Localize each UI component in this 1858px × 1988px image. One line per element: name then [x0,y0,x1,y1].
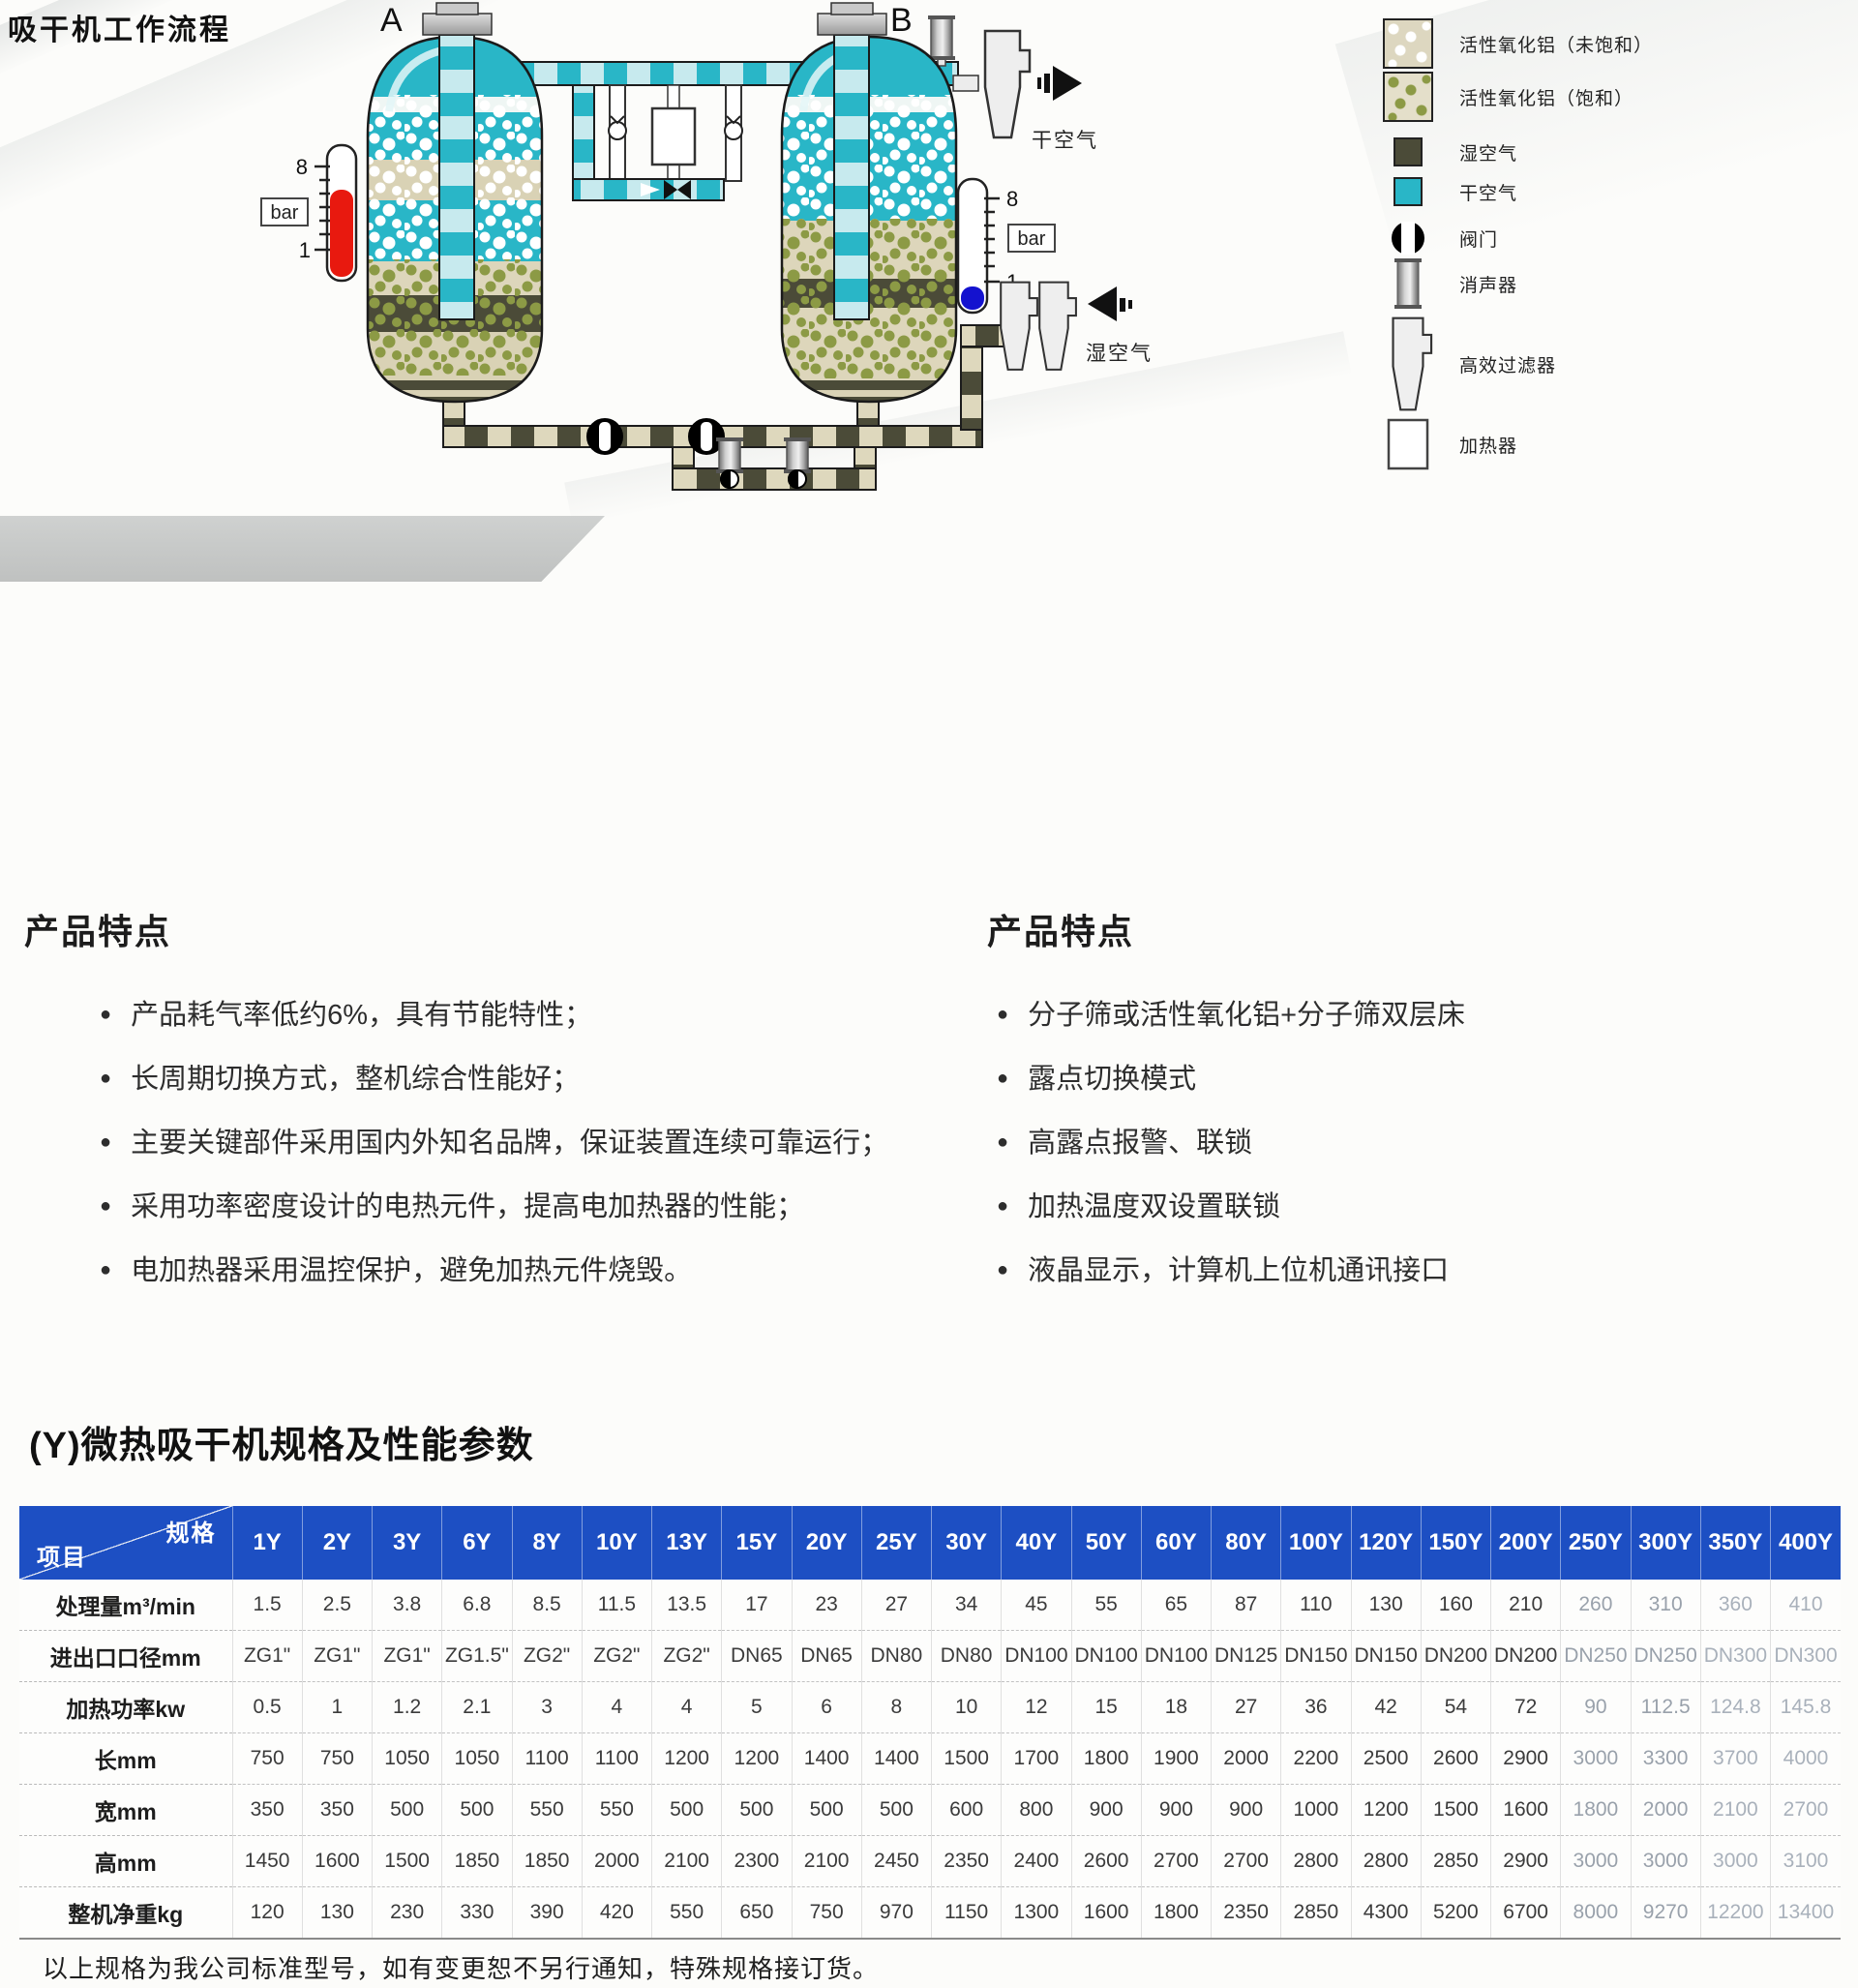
feature-item: ●分子筛或活性氧化铝+分子筛双层床 [987,995,1819,1039]
spec-cell: 1500 [373,1836,442,1887]
bullet-icon: ● [997,1195,1008,1217]
heater-icon [1387,418,1429,470]
row-label: 宽mm [19,1785,232,1836]
gauge-max-label: 8 [1006,187,1018,211]
spec-cell: 2400 [1002,1836,1071,1887]
spec-cell: 8000 [1561,1887,1631,1940]
spec-row: 加热功率kw0.511.22.1344568101215182736425472… [19,1682,1841,1733]
spec-cell: 5 [722,1682,792,1733]
spec-row: 进出口口径mmZG1"ZG1"ZG1"ZG1.5"ZG2"ZG2"ZG2"DN6… [19,1631,1841,1682]
spec-cell: 8 [861,1682,931,1733]
features-right-list: ●分子筛或活性氧化铝+分子筛双层床 ●露点切换模式 ●高露点报警、联锁 ●加热温… [987,995,1819,1294]
feature-item: ●液晶显示，计算机上位机通讯接口 [987,1250,1819,1294]
feature-item: ●电加热器采用温控保护，避免加热元件烧毁。 [24,1250,929,1294]
spec-cell: 2350 [932,1836,1002,1887]
hepa-filter-icon [1380,316,1436,411]
spec-cell: 3300 [1631,1733,1700,1785]
spec-cell: 2.5 [302,1580,372,1631]
spec-cell: 27 [861,1580,931,1631]
spec-cell: 2350 [1212,1887,1281,1940]
feature-item: ●产品耗气率低约6%，具有节能特性； [24,995,929,1039]
spec-cell: 900 [1212,1785,1281,1836]
spec-table-wrap: 规格项目1Y2Y3Y6Y8Y10Y13Y15Y20Y25Y30Y40Y50Y60… [19,1506,1841,1940]
spec-cell: 1900 [1141,1733,1211,1785]
spec-row: 宽mm3503505005005505505005005005006008009… [19,1785,1841,1836]
spec-cell: 2500 [1351,1733,1421,1785]
spec-cell: 1.5 [232,1580,302,1631]
spec-cell: 550 [512,1785,582,1836]
spec-cell: 1800 [1141,1887,1211,1940]
spec-cell: DN65 [722,1631,792,1682]
spec-cell: 4 [582,1682,651,1733]
spec-cell: 2100 [792,1836,861,1887]
spec-cell: 2850 [1281,1887,1351,1940]
spec-cell: 8.5 [512,1580,582,1631]
spec-cell: 0.5 [232,1682,302,1733]
legend-label: 消声器 [1459,271,1517,297]
spec-cell: 2000 [1631,1785,1700,1836]
column-header-120Y: 120Y [1351,1506,1421,1580]
column-header-2Y: 2Y [302,1506,372,1580]
feature-item: ●露点切换模式 [987,1059,1819,1102]
spec-cell: 1 [302,1682,372,1733]
spec-cell: 4 [652,1682,722,1733]
spec-cell: 230 [373,1887,442,1940]
vessel-b-label: B [890,2,913,39]
spec-cell: 2850 [1421,1836,1490,1887]
column-header-3Y: 3Y [373,1506,442,1580]
spec-cell: 310 [1631,1580,1700,1631]
legend-label: 活性氧化铝（未饱和） [1459,31,1653,57]
spec-cell: 260 [1561,1580,1631,1631]
spec-cell: 23 [792,1580,861,1631]
spec-cell: 390 [512,1887,582,1940]
spec-cell: 3 [512,1682,582,1733]
bullet-icon: ● [100,1068,111,1089]
features-left-title: 产品特点 [24,904,929,954]
legend-item-alumina-saturated: 活性氧化铝（饱和） [1380,72,1633,122]
spec-cell: ZG1.5" [442,1631,512,1682]
spec-cell: 2900 [1491,1733,1561,1785]
spec-cell: 2300 [722,1836,792,1887]
spec-cell: 11.5 [582,1580,651,1631]
column-header-150Y: 150Y [1421,1506,1490,1580]
spec-cell: ZG1" [373,1631,442,1682]
alumina-unsaturated-swatch-icon [1383,18,1433,69]
bullet-icon: ● [997,1259,1008,1280]
features-right-title: 产品特点 [987,904,1819,954]
spec-cell: 2450 [861,1836,931,1887]
dry-air-arrow [1037,66,1082,101]
spec-cell: DN150 [1281,1631,1351,1682]
spec-cell: DN200 [1491,1631,1561,1682]
column-header-13Y: 13Y [652,1506,722,1580]
spec-cell: 1850 [512,1836,582,1887]
spec-cell: 1.2 [373,1682,442,1733]
spec-cell: 90 [1561,1682,1631,1733]
legend-item-heater: 加热器 [1380,418,1517,470]
bullet-icon: ● [997,1068,1008,1089]
spec-cell: 500 [861,1785,931,1836]
spec-cell: DN100 [1071,1631,1141,1682]
spec-cell: 750 [792,1887,861,1940]
valve-icon [1389,219,1427,257]
spec-cell: 130 [302,1887,372,1940]
spec-cell: 1050 [373,1733,442,1785]
spec-cell: 350 [232,1785,302,1836]
spec-cell: 120 [232,1887,302,1940]
riser-pipe [439,35,474,319]
spec-cell: 6700 [1491,1887,1561,1940]
spec-cell: 360 [1700,1580,1770,1631]
row-label: 整机净重kg [19,1887,232,1940]
bar-unit-label: bar [1018,228,1046,250]
spec-cell: 3.8 [373,1580,442,1631]
spec-cell: 1600 [1491,1785,1561,1836]
corner-item-label: 项目 [37,1538,87,1572]
spec-cell: 1400 [861,1733,931,1785]
spec-cell: 2800 [1281,1836,1351,1887]
spec-cell: 3700 [1700,1733,1770,1785]
gray-divider-band [0,516,605,582]
outlet-filter-icon [985,31,1030,137]
spec-cell: 500 [442,1785,512,1836]
spec-cell: 1200 [1351,1785,1421,1836]
spec-cell: 2600 [1421,1733,1490,1785]
spec-cell: 650 [722,1887,792,1940]
vessel-b [782,3,956,405]
spec-cell: 750 [232,1733,302,1785]
spec-cell: 3100 [1771,1836,1842,1887]
legend-item-muffler: 消声器 [1380,256,1517,311]
features-section-right: 产品特点 ●分子筛或活性氧化铝+分子筛双层床 ●露点切换模式 ●高露点报警、联锁… [987,904,1819,1314]
spec-table: 规格项目1Y2Y3Y6Y8Y10Y13Y15Y20Y25Y30Y40Y50Y60… [19,1506,1841,1940]
spec-cell: 87 [1212,1580,1281,1631]
spec-cell: 500 [722,1785,792,1836]
flange [818,14,886,35]
spec-cell: 1450 [232,1836,302,1887]
bullet-icon: ● [997,1004,1008,1025]
spec-cell: DN250 [1561,1631,1631,1682]
wet-air-arrow [1088,286,1132,321]
spec-cell: 130 [1351,1580,1421,1631]
spec-cell: 2200 [1281,1733,1351,1785]
spec-cell: 1850 [442,1836,512,1887]
bar-unit-label: bar [271,202,299,224]
spec-cell: 1500 [1421,1785,1490,1836]
spec-cell: 3000 [1561,1836,1631,1887]
spec-cell: DN250 [1631,1631,1700,1682]
spec-cell: 2100 [652,1836,722,1887]
spec-cell: 1300 [1002,1887,1071,1940]
legend-item-alumina-unsaturated: 活性氧化铝（未饱和） [1380,18,1653,69]
spec-cell: 600 [932,1785,1002,1836]
column-header-300Y: 300Y [1631,1506,1700,1580]
features-section-left: 产品特点 ●产品耗气率低约6%，具有节能特性； ●长周期切换方式，整机综合性能好… [24,904,929,1314]
spec-cell: 500 [373,1785,442,1836]
column-header-200Y: 200Y [1491,1506,1561,1580]
table-corner-cell: 规格项目 [19,1506,232,1580]
spec-cell: ZG1" [302,1631,372,1682]
spec-cell: DN125 [1212,1631,1281,1682]
features-left-list: ●产品耗气率低约6%，具有节能特性； ●长周期切换方式，整机综合性能好； ●主要… [24,995,929,1294]
legend-item-hepa-filter: 高效过滤器 [1380,316,1556,411]
spec-cell: 2.1 [442,1682,512,1733]
bullet-icon: ● [100,1259,111,1280]
column-header-250Y: 250Y [1561,1506,1631,1580]
vessel-a-label: A [380,2,403,39]
gauge-max-label: 8 [296,155,308,179]
spec-cell: 160 [1421,1580,1490,1631]
spec-cell: 970 [861,1887,931,1940]
wet-air-swatch-icon [1393,137,1423,166]
spec-table-title: (Y)微热吸干机规格及性能参数 [29,1415,534,1468]
spec-cell: 1500 [932,1733,1002,1785]
spec-cell: 72 [1491,1682,1561,1733]
gauge-min-label: 1 [299,238,311,262]
corner-spec-label: 规格 [166,1514,217,1548]
wet-air-label: 湿空气 [1086,343,1153,365]
spec-cell: 1050 [442,1733,512,1785]
spec-cell: DN80 [932,1631,1002,1682]
spec-cell: 12200 [1700,1887,1770,1940]
riser-pipe [834,35,869,319]
spec-row: 处理量m³/min1.52.53.86.88.511.513.517232734… [19,1580,1841,1631]
spec-cell: 420 [582,1887,651,1940]
spec-cell: 900 [1071,1785,1141,1836]
bullet-icon: ● [100,1131,111,1153]
top-muffler-icon [928,15,955,60]
spec-cell: 750 [302,1733,372,1785]
row-label: 处理量m³/min [19,1580,232,1631]
legend-item-valve: 阀门 [1380,219,1498,257]
legend-label: 湿空气 [1459,139,1517,166]
spec-cell: 6.8 [442,1580,512,1631]
spec-cell: 3000 [1561,1733,1631,1785]
feature-item: ●加热温度双设置联锁 [987,1187,1819,1230]
spec-cell: 15 [1071,1682,1141,1733]
bullet-icon: ● [997,1131,1008,1153]
spec-cell: 350 [302,1785,372,1836]
row-label: 进出口口径mm [19,1631,232,1682]
spec-cell: 2100 [1700,1785,1770,1836]
spec-cell: ZG1" [232,1631,302,1682]
legend-label: 高效过滤器 [1459,351,1556,377]
spec-cell: 500 [792,1785,861,1836]
spec-cell: ZG2" [582,1631,651,1682]
spec-cell: 42 [1351,1682,1421,1733]
spec-cell: 2700 [1212,1836,1281,1887]
spec-cell: 1800 [1071,1733,1141,1785]
spec-cell: 1800 [1561,1785,1631,1836]
spec-cell: 3000 [1700,1836,1770,1887]
spec-cell: 800 [1002,1785,1071,1836]
row-label: 加热功率kw [19,1682,232,1733]
spec-cell: 1400 [792,1733,861,1785]
feature-item: ●主要关键部件采用国内外知名品牌，保证装置连续可靠运行； [24,1123,929,1166]
column-header-6Y: 6Y [442,1506,512,1580]
alumina-saturated-swatch-icon [1383,72,1433,122]
spec-cell: 1000 [1281,1785,1351,1836]
spec-cell: 55 [1071,1580,1141,1631]
spec-cell: DN65 [792,1631,861,1682]
spec-cell: 2000 [1212,1733,1281,1785]
spec-row: 高mm1450160015001850185020002100230021002… [19,1836,1841,1887]
spec-cell: 27 [1212,1682,1281,1733]
spec-cell: 2900 [1491,1836,1561,1887]
feature-item: ●采用功率密度设计的电热元件，提高电加热器的性能； [24,1187,929,1230]
spec-cell: 410 [1771,1580,1842,1631]
spec-cell: 54 [1421,1682,1490,1733]
spec-cell: 13400 [1771,1887,1842,1940]
spec-cell: DN200 [1421,1631,1490,1682]
dry-air-swatch-icon [1393,177,1423,206]
spec-cell: 145.8 [1771,1682,1842,1733]
bullet-icon: ● [100,1004,111,1025]
spec-cell: ZG2" [652,1631,722,1682]
spec-cell: 4000 [1771,1733,1842,1785]
spec-cell: 2700 [1771,1785,1842,1836]
spec-cell: 10 [932,1682,1002,1733]
spec-cell: 2600 [1071,1836,1141,1887]
column-header-1Y: 1Y [232,1506,302,1580]
spec-cell: 1200 [652,1733,722,1785]
spec-cell: 18 [1141,1682,1211,1733]
muffler-icon [1393,256,1423,311]
spec-cell: 550 [582,1785,651,1836]
column-header-40Y: 40Y [1002,1506,1071,1580]
column-header-25Y: 25Y [861,1506,931,1580]
legend-label: 活性氧化铝（饱和） [1459,84,1633,110]
spec-cell: 45 [1002,1580,1071,1631]
spec-cell: DN100 [1002,1631,1071,1682]
row-label: 长mm [19,1733,232,1785]
column-header-50Y: 50Y [1071,1506,1141,1580]
flange [423,14,492,35]
spec-cell: DN80 [861,1631,931,1682]
legend-item-dry-air: 干空气 [1380,177,1517,206]
spec-cell: 6 [792,1682,861,1733]
spec-cell: 1100 [582,1733,651,1785]
column-header-15Y: 15Y [722,1506,792,1580]
spec-row: 整机净重kg1201302303303904205506507509701150… [19,1887,1841,1940]
inlet-filter-icon [1001,283,1037,370]
spec-cell: 1100 [512,1733,582,1785]
spec-cell: 550 [652,1887,722,1940]
spec-cell: 1600 [1071,1887,1141,1940]
spec-cell: 2800 [1351,1836,1421,1887]
feature-item: ●高露点报警、联锁 [987,1123,1819,1166]
spec-cell: 12 [1002,1682,1071,1733]
heater [652,108,695,165]
spec-cell: DN300 [1700,1631,1770,1682]
spec-cell: 210 [1491,1580,1561,1631]
legend-label: 干空气 [1459,179,1517,205]
column-header-20Y: 20Y [792,1506,861,1580]
spec-cell: 13.5 [652,1580,722,1631]
spec-cell: 1600 [302,1836,372,1887]
column-header-400Y: 400Y [1771,1506,1842,1580]
column-header-30Y: 30Y [932,1506,1002,1580]
inlet-filter-icon [1039,283,1076,370]
pressure-gauge-left: 8 1 bar [261,145,356,281]
legend-label: 阀门 [1459,226,1498,252]
column-header-8Y: 8Y [512,1506,582,1580]
spec-cell: 1700 [1002,1733,1071,1785]
spec-cell: ZG2" [512,1631,582,1682]
spec-cell: 900 [1141,1785,1211,1836]
spec-cell: 9270 [1631,1887,1700,1940]
legend-item-wet-air: 湿空气 [1380,137,1517,166]
spec-cell: DN150 [1351,1631,1421,1682]
row-label: 高mm [19,1836,232,1887]
column-header-350Y: 350Y [1700,1506,1770,1580]
spec-cell: 34 [932,1580,1002,1631]
feature-item: ●长周期切换方式，整机综合性能好； [24,1059,929,1102]
column-header-10Y: 10Y [582,1506,651,1580]
spec-cell: 5200 [1421,1887,1490,1940]
spec-cell: 4300 [1351,1887,1421,1940]
dry-air-label: 干空气 [1032,130,1098,152]
spec-cell: 500 [652,1785,722,1836]
column-header-60Y: 60Y [1141,1506,1211,1580]
spec-cell: 110 [1281,1580,1351,1631]
vessel-a [368,3,542,405]
spec-cell: 1150 [932,1887,1002,1940]
spec-footnote: 以上规格为我公司标准型号，如有变更恕不另行通知，特殊规格接订货。 [43,1949,879,1985]
spec-cell: 1200 [722,1733,792,1785]
spec-cell: DN300 [1771,1631,1842,1682]
column-header-100Y: 100Y [1281,1506,1351,1580]
spec-cell: DN100 [1141,1631,1211,1682]
spec-cell: 65 [1141,1580,1211,1631]
spec-cell: 17 [722,1580,792,1631]
spec-cell: 2700 [1141,1836,1211,1887]
spec-cell: 330 [442,1887,512,1940]
spec-cell: 3000 [1631,1836,1700,1887]
bullet-icon: ● [100,1195,111,1217]
spec-row: 长mm7507501050105011001100120012001400140… [19,1733,1841,1785]
spec-cell: 124.8 [1700,1682,1770,1733]
spec-cell: 2000 [582,1836,651,1887]
spec-cell: 112.5 [1631,1682,1700,1733]
legend-label: 加热器 [1459,432,1517,458]
spec-cell: 36 [1281,1682,1351,1733]
column-header-80Y: 80Y [1212,1506,1281,1580]
